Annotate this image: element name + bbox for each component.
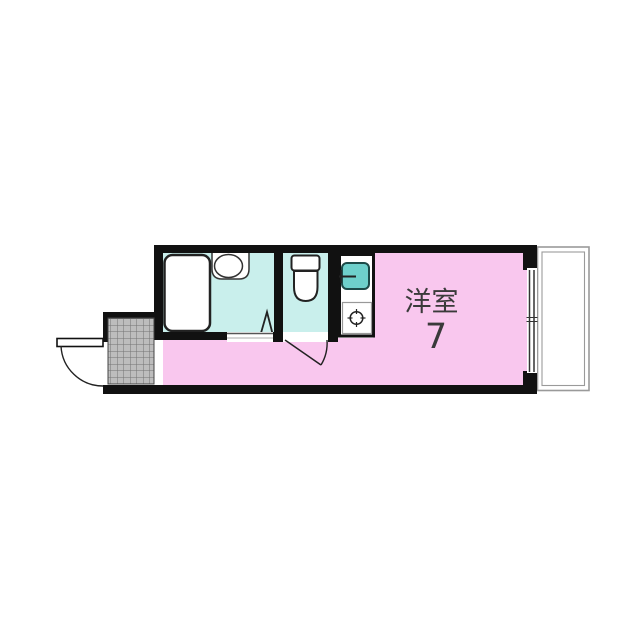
window <box>527 268 538 373</box>
toilet-bowl <box>294 271 318 301</box>
bathtub-icon <box>165 255 211 331</box>
wall-washroom-toilet <box>274 245 283 342</box>
toilet-tank <box>292 256 320 271</box>
wall-toilet-kitchen <box>328 245 338 342</box>
room-name-label: 洋室 <box>405 287 459 318</box>
stove-area <box>343 303 372 334</box>
wall-top <box>154 245 537 253</box>
room-size-label: 7 <box>425 317 447 357</box>
wall-bathroom-bottom <box>154 332 228 340</box>
entry-door-leaf <box>57 339 103 347</box>
wash-basin-icon <box>215 255 243 278</box>
floor-plan-drawing: 洋室 7 <box>0 0 640 640</box>
wall-pillar-top-right <box>523 245 537 270</box>
wall-entrance-left <box>103 312 108 342</box>
toilet-icon <box>292 256 320 302</box>
balcony-outer-rail <box>538 247 590 391</box>
toilet-door-opening <box>283 332 328 342</box>
entrance-tile <box>108 318 154 384</box>
floor-plan-page: 洋室 7 <box>0 0 640 640</box>
washroom-threshold <box>227 332 273 342</box>
wall-left <box>154 245 163 340</box>
wall-entrance-top <box>103 312 159 318</box>
wall-bottom <box>103 385 537 394</box>
balcony <box>538 247 590 391</box>
kitchen-unit <box>339 255 374 337</box>
